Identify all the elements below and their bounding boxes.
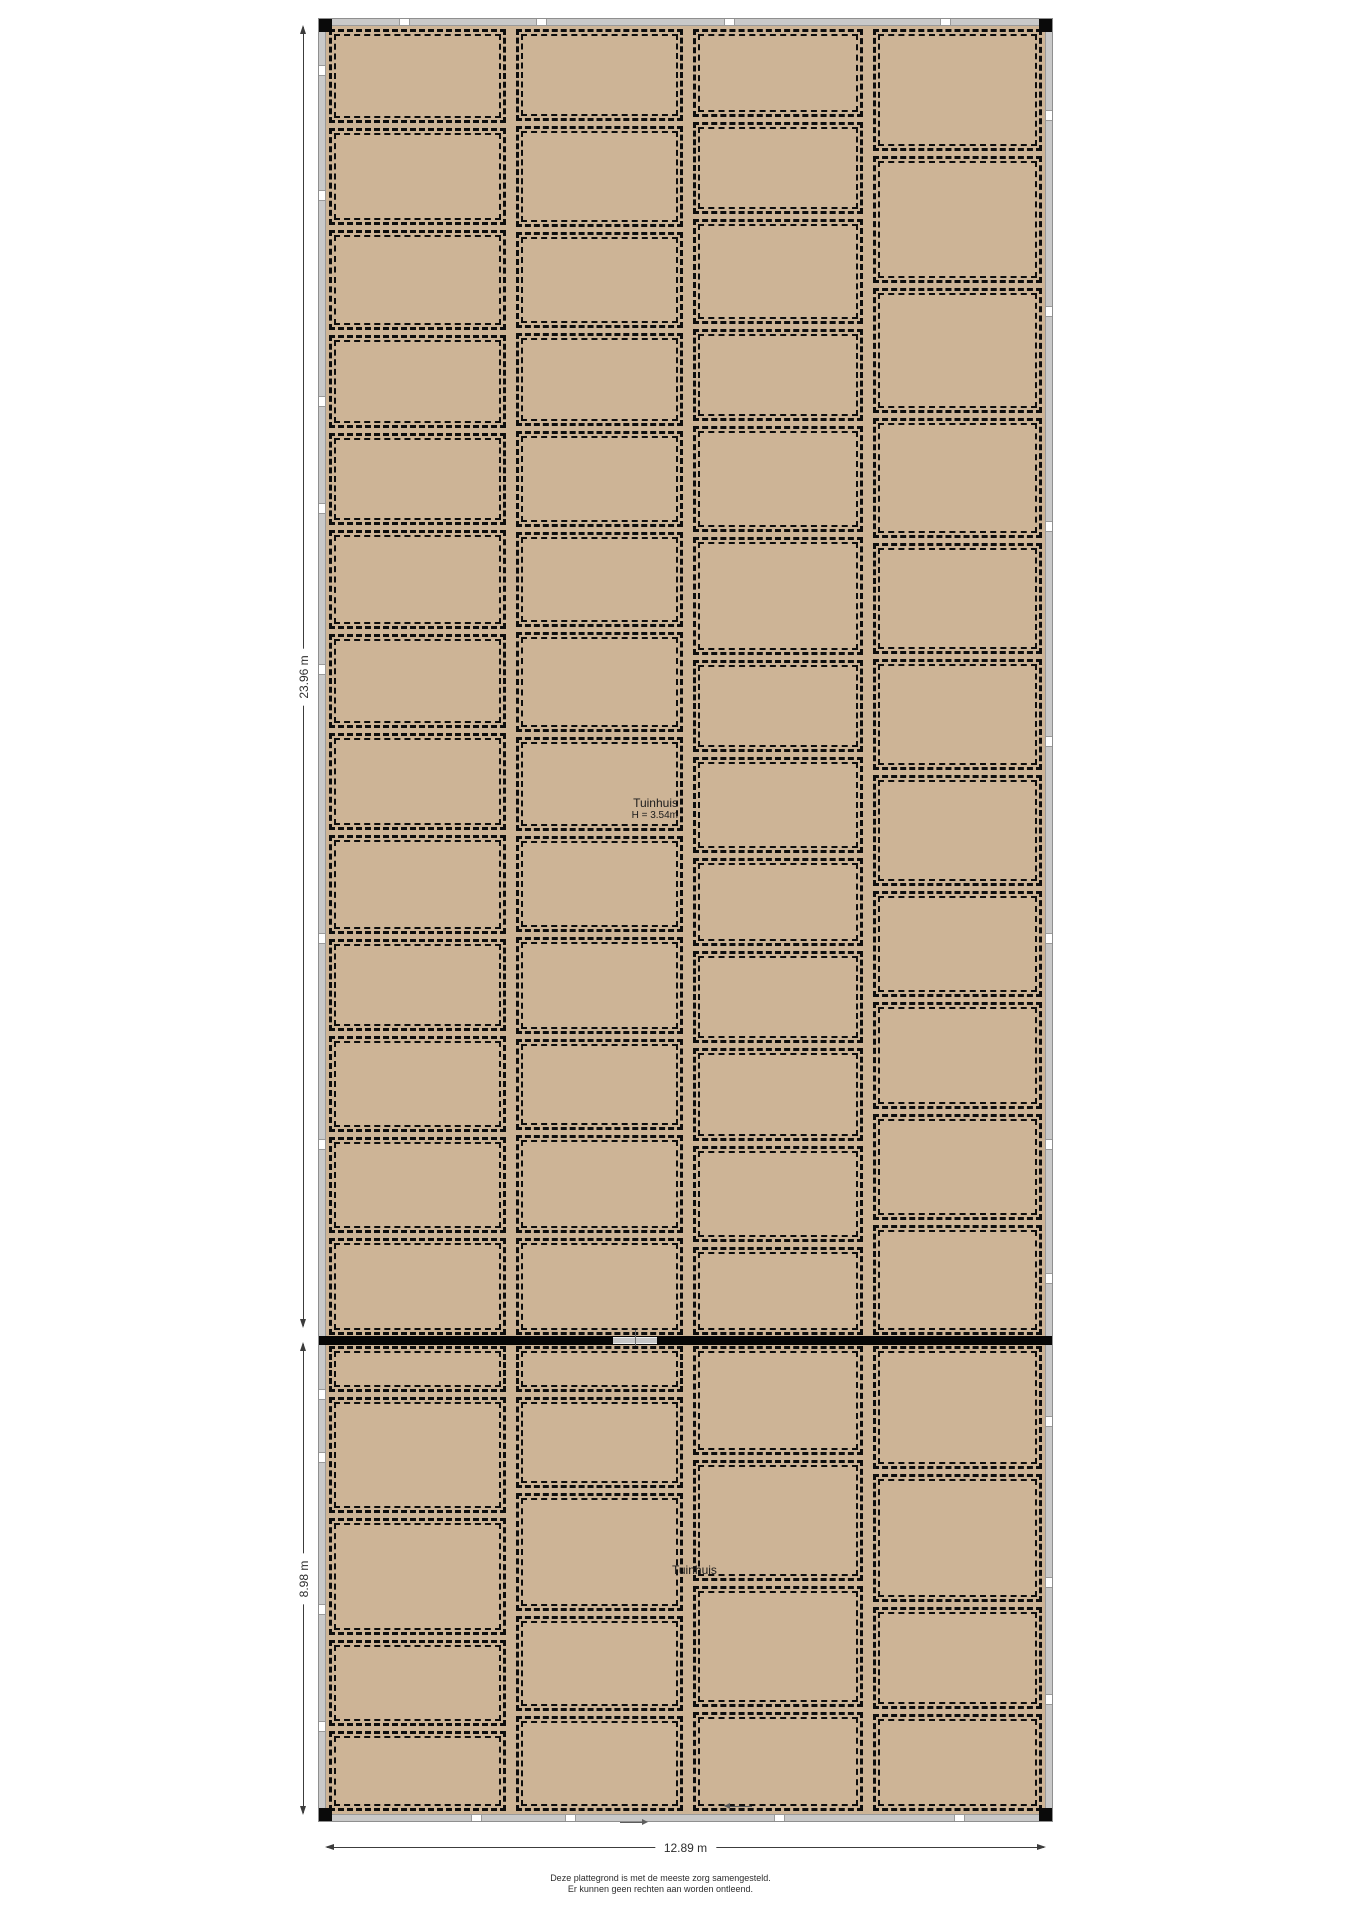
plot-inner-outline [698,665,859,747]
plot-inner-outline [698,334,859,416]
plot-inner-outline [334,34,501,118]
plot-inner-outline [334,1402,501,1508]
plot-inner-outline [878,1612,1037,1704]
garden-plot-cell [329,230,506,330]
plot-column [329,1346,506,1811]
garden-plot-cell [329,128,506,225]
garden-plot-cell [693,757,864,854]
garden-plot-cell [516,232,683,328]
garden-plot-cell [873,891,1042,997]
garden-plot-cell [693,122,864,214]
plot-inner-outline [878,1719,1037,1806]
garden-plot-cell [329,1238,506,1335]
plot-inner-outline [878,896,1037,992]
plot-inner-outline [521,637,678,727]
garden-plot-cell [873,1607,1042,1709]
garden-plot-cell [329,530,506,629]
disclaimer-line-2: Er kunnen geen rechten aan worden ontlee… [300,1884,1021,1895]
plot-inner-outline [334,235,501,325]
garden-plot-cell [516,937,683,1034]
garden-plot-cell [516,29,683,121]
plot-inner-outline [698,542,859,650]
garden-plot-cell [516,1238,683,1334]
plot-inner-outline [334,1645,501,1721]
plot-inner-outline [878,780,1037,881]
wall-corner-top-left [319,19,332,32]
plot-inner-outline [334,1736,501,1806]
wall-window-tick [1046,1578,1052,1587]
plot-inner-outline [334,738,501,825]
garden-plot-cell [693,329,864,421]
wall-window-tick [1046,1274,1052,1283]
dimension-label: 8.98 m [296,1553,312,1604]
garden-plot-cell [329,939,506,1032]
plot-column [693,29,864,1335]
garden-plot-cell [873,543,1042,654]
wall-window-tick [319,1453,325,1462]
plot-inner-outline [521,436,678,522]
garden-plot-cell [873,418,1042,538]
plot-column [873,29,1042,1335]
wall-window-tick [725,19,734,25]
garden-plot-cell [516,126,683,227]
garden-plot-cell [329,433,506,525]
garden-plot-cell [693,537,864,655]
garden-plot-cell [873,1114,1042,1220]
garden-plot-cell [329,1518,506,1635]
plot-inner-outline [334,639,501,723]
dimension-bottom: 12.89 m [325,1840,1046,1856]
wall-window-tick [1046,111,1052,120]
wall-window-tick [537,19,546,25]
garden-plot-cell [329,733,506,830]
plot-inner-outline [334,438,501,520]
plot-column [516,1346,683,1811]
wall-window-tick [1046,737,1052,746]
plot-inner-outline [334,340,501,423]
garden-plot-cell [516,532,683,628]
plot-inner-outline [698,1151,859,1238]
garden-plot-cell [873,1714,1042,1811]
plot-inner-outline [521,537,678,623]
plot-inner-outline [521,942,678,1029]
plot-inner-outline [521,237,678,323]
disclaimer: Deze plattegrond is met de meeste zorg s… [300,1873,1021,1895]
garden-plot-cell [693,1460,864,1581]
wall-window-tick [400,19,409,25]
wall-window-tick [941,19,950,25]
garden-plot-cell [873,1002,1042,1108]
garden-plot-cell [693,1247,864,1335]
garden-plot-cell [693,1712,864,1811]
arrow-down-icon [300,1319,306,1328]
wall-window-tick [955,1815,964,1821]
wall-window-tick [319,1605,325,1614]
plot-inner-outline [334,1142,501,1228]
garden-plot-cell [516,1039,683,1130]
room-label-height: H = 3.54m [632,810,678,821]
garden-plot-cell [693,219,864,324]
plot-inner-outline [521,338,678,421]
plot-inner-outline [334,1523,501,1630]
plot-inner-outline [698,956,859,1038]
garden-plot-cell [516,1135,683,1233]
garden-plot-cell [516,431,683,527]
room-label-name: Tuinhuis [632,797,678,810]
plot-inner-outline [698,431,859,526]
plot-inner-outline [521,1044,678,1125]
arrow-right-icon [1037,1844,1046,1850]
garden-plot-cell [329,1137,506,1233]
plot-inner-outline [698,1053,859,1135]
divider-opening [613,1337,657,1344]
floorplan-page: Tuinhuis H = 3.54m Tuinhuis 23.96 m 8.98… [0,0,1358,1920]
garden-plot-cell [873,1474,1042,1602]
plot-inner-outline [878,34,1037,146]
garden-plot-cell [693,29,864,117]
garden-plot-cell [329,335,506,428]
plot-column [693,1346,864,1811]
wall-window-tick [1046,307,1052,316]
plot-inner-outline [521,1243,678,1329]
garden-plot-cell [516,632,683,732]
garden-plot-cell [693,1346,864,1456]
plot-inner-outline [698,1717,859,1806]
wall-window-tick [472,1815,481,1821]
plot-inner-outline [334,1243,501,1330]
garden-plot-cell [329,634,506,728]
plot-inner-outline [698,1591,859,1702]
dimension-label: 23.96 m [296,648,312,705]
floorplan: Tuinhuis H = 3.54m Tuinhuis [319,19,1052,1821]
garden-plot-cell [516,333,683,426]
wall-window-tick [319,1140,325,1149]
wall-corner-bottom-right [1039,1808,1052,1821]
dimension-left-upper: 23.96 m [296,25,312,1328]
wall-window-tick [1046,1695,1052,1704]
garden-plot-cell [873,29,1042,151]
floorplan-inner [325,25,1046,1815]
plot-column [516,29,683,1335]
garden-plot-cell [873,1225,1042,1335]
plot-inner-outline [878,1351,1037,1464]
garden-plot-cell [693,1048,864,1140]
wall-window-tick [1046,522,1052,531]
plot-inner-outline [334,1351,501,1387]
plot-inner-outline [521,131,678,222]
wall-window-tick [319,397,325,406]
section-lower [328,1345,1043,1812]
wall-window-tick [1046,934,1052,943]
plot-inner-outline [521,34,678,116]
plot-inner-outline [698,1465,859,1576]
dimension-left-lower: 8.98 m [296,1342,312,1815]
plot-inner-outline [878,548,1037,649]
garden-plot-cell [693,660,864,752]
garden-plot-cell [693,426,864,531]
plot-inner-outline [878,293,1037,408]
plot-column [329,29,506,1335]
dimension-label: 12.89 m [655,1840,716,1856]
garden-plot-cell [516,1493,683,1611]
plot-inner-outline [698,1351,859,1451]
wall-window-tick [319,1722,325,1731]
garden-plot-cell [693,1586,864,1707]
wall-window-tick [319,665,325,674]
garden-plot-cell [693,951,864,1043]
wall-corner-top-right [1039,19,1052,32]
entrance-arrow-left-icon [724,1803,752,1810]
plot-inner-outline [878,161,1037,278]
garden-plot-cell [329,835,506,933]
room-label-tuinhuis-lower: Tuinhuis [672,1563,717,1577]
section-divider-wall [319,1336,1052,1345]
garden-plot-cell [516,836,683,932]
section-upper [328,28,1043,1336]
wall-window-tick [319,1390,325,1399]
wall-window-tick [319,191,325,200]
plot-inner-outline [521,1721,678,1806]
garden-plot-cell [516,1716,683,1811]
plot-inner-outline [698,863,859,941]
plot-inner-outline [878,1119,1037,1215]
plot-inner-outline [334,1041,501,1127]
plot-inner-outline [521,1140,678,1228]
garden-plot-cell [873,1346,1042,1469]
wall-window-tick [319,66,325,75]
room-label-tuinhuis-upper: Tuinhuis H = 3.54m [632,797,678,821]
garden-plot-cell [329,29,506,123]
plot-inner-outline [521,1351,678,1387]
garden-plot-cell [329,1397,506,1513]
garden-plot-cell [329,1036,506,1132]
plot-inner-outline [698,34,859,112]
arrow-up-icon [300,25,306,34]
plot-inner-outline [334,535,501,624]
garden-plot-cell [516,1397,683,1488]
garden-plot-cell [516,1346,683,1392]
plot-inner-outline [878,664,1037,765]
plot-inner-outline [334,840,501,928]
plot-inner-outline [521,1621,678,1706]
wall-window-tick [566,1815,575,1821]
plot-inner-outline [334,133,501,220]
plot-inner-outline [878,1230,1037,1330]
garden-plot-cell [873,288,1042,413]
plot-column [873,1346,1042,1811]
wall-window-tick [1046,1417,1052,1426]
wall-window-tick [319,934,325,943]
plot-inner-outline [878,423,1037,533]
wall-corner-bottom-left [319,1808,332,1821]
arrow-down-icon [300,1806,306,1815]
plot-inner-outline [698,224,859,319]
garden-plot-cell [873,156,1042,283]
garden-plot-cell [693,1146,864,1243]
garden-plot-cell [329,1346,506,1392]
plot-inner-outline [521,1402,678,1483]
garden-plot-cell [329,1731,506,1811]
arrow-left-icon [325,1844,334,1850]
garden-plot-cell [516,1616,683,1711]
wall-window-tick [319,504,325,513]
plot-inner-outline [698,127,859,209]
plot-inner-outline [521,1498,678,1606]
garden-plot-cell [873,775,1042,886]
garden-plot-cell [873,659,1042,770]
plot-inner-outline [334,944,501,1027]
plot-inner-outline [878,1479,1037,1597]
disclaimer-line-1: Deze plattegrond is met de meeste zorg s… [300,1873,1021,1884]
wall-window-tick [1046,1140,1052,1149]
garden-plot-cell [329,1640,506,1726]
wall-window-tick [775,1815,784,1821]
garden-plot-cell [693,858,864,946]
entrance-arrow-right-icon [620,1819,648,1826]
plot-inner-outline [698,1252,859,1330]
arrow-up-icon [300,1342,306,1351]
plot-inner-outline [698,762,859,849]
plot-inner-outline [521,841,678,927]
plot-inner-outline [878,1007,1037,1103]
